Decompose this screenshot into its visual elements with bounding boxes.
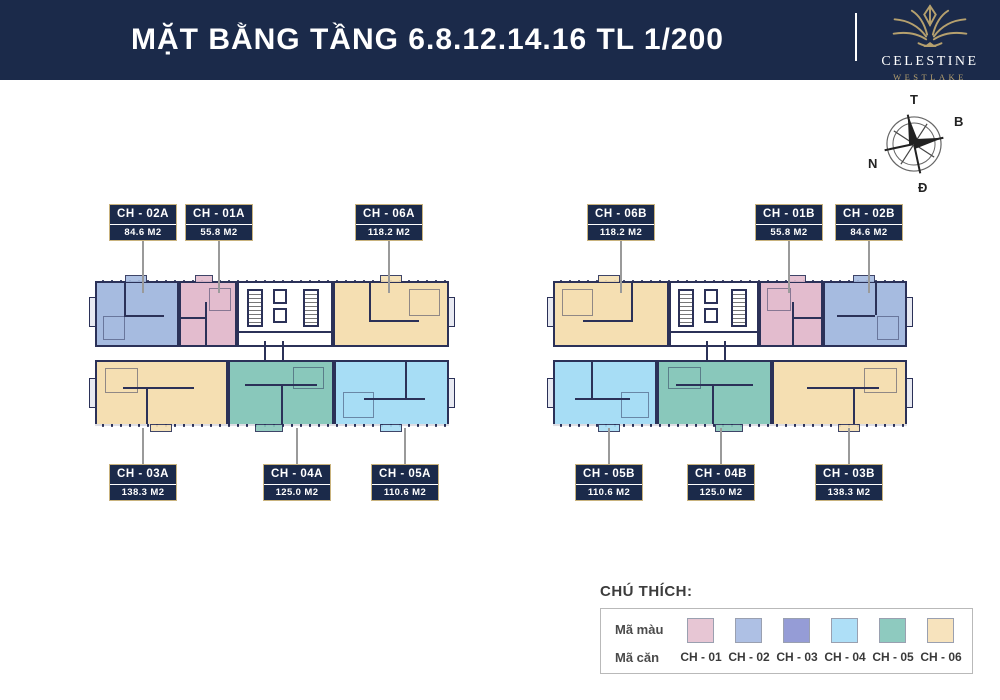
legend-swatch-ch-05 xyxy=(879,618,906,643)
unit-tag-ch-02b: CH - 02B 84.6 M2 xyxy=(835,204,903,241)
unit-code: CH - 04B xyxy=(688,465,754,485)
legend-swatch-ch-01 xyxy=(687,618,714,643)
compass-label-right: B xyxy=(954,114,963,129)
unit-ch-05a xyxy=(334,360,449,426)
balcony-endcap xyxy=(448,378,455,408)
unit-tag-ch-05a: CH - 05A 110.6 M2 xyxy=(371,464,439,501)
unit-area: 84.6 M2 xyxy=(836,225,902,239)
legend-title: CHÚ THÍCH: xyxy=(600,583,975,600)
leader-line xyxy=(788,241,790,293)
block-a-core xyxy=(237,281,333,347)
leader-line xyxy=(848,428,850,464)
floorplan-block-b xyxy=(553,275,907,435)
leader-line xyxy=(720,428,722,464)
balcony-endcap xyxy=(547,297,554,327)
unit-tag-ch-04b: CH - 04B 125.0 M2 xyxy=(687,464,755,501)
legend-code-ch-03: CH - 03 xyxy=(773,650,821,664)
unit-code: CH - 05B xyxy=(576,465,642,485)
leader-line xyxy=(868,241,870,293)
page-title: MẶT BẰNG TẦNG 6.8.12.14.16 TL 1/200 xyxy=(0,0,855,80)
compass-rose-icon: T B N Đ xyxy=(866,92,966,197)
unit-area: 55.8 M2 xyxy=(756,225,822,239)
unit-tag-ch-04a: CH - 04A 125.0 M2 xyxy=(263,464,331,501)
compass-label-top: T xyxy=(910,92,918,107)
legend-code-ch-01: CH - 01 xyxy=(677,650,725,664)
unit-ch-03a xyxy=(95,360,228,426)
balcony-endcap xyxy=(906,378,913,408)
unit-ch-04a xyxy=(228,360,334,426)
unit-area: 118.2 M2 xyxy=(588,225,654,239)
unit-ch-01b xyxy=(759,281,823,347)
block-b-corridor-link xyxy=(706,341,726,362)
unit-area: 110.6 M2 xyxy=(576,485,642,499)
unit-ch-02a xyxy=(95,281,179,347)
balcony xyxy=(150,424,172,432)
unit-tag-ch-06b: CH - 06B 118.2 M2 xyxy=(587,204,655,241)
unit-code: CH - 03A xyxy=(110,465,176,485)
unit-ch-01a xyxy=(179,281,237,347)
leader-line xyxy=(142,428,144,464)
legend-color-row-label: Mã màu xyxy=(615,622,663,637)
block-b-bottom-strip xyxy=(553,360,907,426)
brand-logo: CELESTINE WESTLAKE xyxy=(866,4,994,82)
balcony xyxy=(380,424,402,432)
unit-area: 118.2 M2 xyxy=(356,225,422,239)
unit-ch-05b xyxy=(553,360,657,426)
block-b-top-strip xyxy=(553,281,907,347)
unit-tag-ch-01a: CH - 01A 55.8 M2 xyxy=(185,204,253,241)
unit-ch-06b xyxy=(553,281,669,347)
leader-line xyxy=(404,428,406,464)
legend-swatch-ch-03 xyxy=(783,618,810,643)
unit-code: CH - 01B xyxy=(756,205,822,225)
balcony xyxy=(788,275,806,283)
page: MẶT BẰNG TẦNG 6.8.12.14.16 TL 1/200 CELE… xyxy=(0,0,1000,700)
balcony-endcap xyxy=(89,297,96,327)
floorplan-block-a xyxy=(95,275,449,435)
balcony xyxy=(598,275,620,283)
unit-ch-06a xyxy=(333,281,449,347)
unit-tag-ch-06a: CH - 06A 118.2 M2 xyxy=(355,204,423,241)
balcony-endcap xyxy=(448,297,455,327)
unit-area: 110.6 M2 xyxy=(372,485,438,499)
unit-ch-02b xyxy=(823,281,907,347)
unit-code: CH - 04A xyxy=(264,465,330,485)
balcony-endcap xyxy=(906,297,913,327)
unit-tag-ch-02a: CH - 02A 84.6 M2 xyxy=(109,204,177,241)
legend-unit-row-label: Mã căn xyxy=(615,650,659,665)
unit-code: CH - 05A xyxy=(372,465,438,485)
unit-area: 138.3 M2 xyxy=(816,485,882,499)
legend-swatch-ch-02 xyxy=(735,618,762,643)
brand-subtitle: WESTLAKE xyxy=(866,72,994,82)
balcony xyxy=(853,275,875,283)
compass-label-bottom: Đ xyxy=(918,180,927,195)
block-a-bottom-strip xyxy=(95,360,449,426)
legend-swatch-ch-04 xyxy=(831,618,858,643)
unit-ch-04b xyxy=(657,360,772,426)
unit-tag-ch-05b: CH - 05B 110.6 M2 xyxy=(575,464,643,501)
unit-tag-ch-03b: CH - 03B 138.3 M2 xyxy=(815,464,883,501)
header-bar: MẶT BẰNG TẦNG 6.8.12.14.16 TL 1/200 CELE… xyxy=(0,0,1000,80)
brand-divider xyxy=(855,13,857,61)
leader-line xyxy=(608,428,610,464)
leader-line xyxy=(218,241,220,293)
leader-line xyxy=(296,428,298,464)
unit-code: CH - 01A xyxy=(186,205,252,225)
legend-code-ch-05: CH - 05 xyxy=(869,650,917,664)
balcony-endcap xyxy=(547,378,554,408)
block-b-core xyxy=(669,281,759,347)
balcony xyxy=(380,275,402,283)
block-a-top-strip xyxy=(95,281,449,347)
legend-code-ch-04: CH - 04 xyxy=(821,650,869,664)
leader-line xyxy=(142,241,144,293)
unit-area: 84.6 M2 xyxy=(110,225,176,239)
unit-code: CH - 06B xyxy=(588,205,654,225)
unit-area: 138.3 M2 xyxy=(110,485,176,499)
unit-area: 55.8 M2 xyxy=(186,225,252,239)
compass-label-left: N xyxy=(868,156,877,171)
legend-swatch-ch-06 xyxy=(927,618,954,643)
legend: CHÚ THÍCH: Mã màu Mã căn CH - 01 CH - 02… xyxy=(600,583,975,600)
unit-code: CH - 06A xyxy=(356,205,422,225)
leader-line xyxy=(620,241,622,293)
unit-area: 125.0 M2 xyxy=(264,485,330,499)
unit-code: CH - 03B xyxy=(816,465,882,485)
brand-name: CELESTINE xyxy=(866,54,994,70)
balcony-endcap xyxy=(89,378,96,408)
unit-tag-ch-03a: CH - 03A 138.3 M2 xyxy=(109,464,177,501)
unit-ch-03b xyxy=(772,360,907,426)
balcony xyxy=(255,424,283,432)
unit-area: 125.0 M2 xyxy=(688,485,754,499)
unit-code: CH - 02A xyxy=(110,205,176,225)
leader-line xyxy=(388,241,390,293)
legend-code-ch-02: CH - 02 xyxy=(725,650,773,664)
block-a-corridor-link xyxy=(264,341,284,362)
unit-tag-ch-01b: CH - 01B 55.8 M2 xyxy=(755,204,823,241)
legend-box: Mã màu Mã căn CH - 01 CH - 02 CH - 03 CH… xyxy=(600,608,973,674)
unit-code: CH - 02B xyxy=(836,205,902,225)
balcony xyxy=(195,275,213,283)
lotus-icon xyxy=(882,4,978,48)
legend-code-ch-06: CH - 06 xyxy=(917,650,965,664)
